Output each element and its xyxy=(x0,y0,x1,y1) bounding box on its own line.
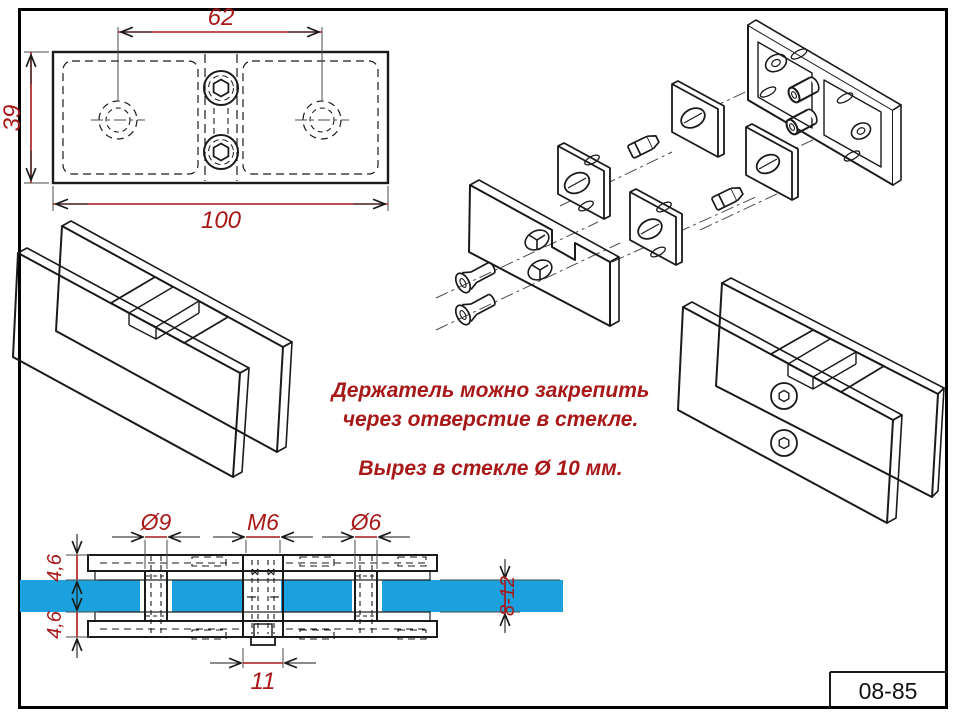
title-block: 08-85 xyxy=(830,672,947,708)
set-screw-2 xyxy=(711,185,744,211)
gasket-pad-left xyxy=(558,143,610,219)
dim-m6: M6 xyxy=(213,509,313,553)
dim-boss-width: 11 xyxy=(210,648,316,695)
dim-height: 39 xyxy=(0,52,49,183)
dim-o9: Ø9 xyxy=(112,509,200,569)
countersunk-screw-2 xyxy=(453,289,499,327)
dim-62-label: 62 xyxy=(208,4,235,31)
note-line-2: через отверстие в стекле. xyxy=(318,405,663,434)
dim-glass-label: 8-12 xyxy=(497,576,519,616)
dim-width: 100 xyxy=(53,186,388,234)
part-number: 08-85 xyxy=(859,678,918,704)
hidden-lines xyxy=(100,557,430,639)
exploded-view xyxy=(436,20,901,330)
top-view: 62 39 100 xyxy=(0,4,388,234)
technical-drawing-page: { "colors": { "dimension_red": "#A81818"… xyxy=(0,0,957,719)
dim-plate-bottom-label: 4,6 xyxy=(44,610,66,639)
dim-100-label: 100 xyxy=(201,207,242,234)
section-view: Ø9 M6 Ø6 4,6 xyxy=(20,509,563,695)
dim-m6-label: M6 xyxy=(247,509,279,535)
iso-view-right xyxy=(678,278,944,523)
gasket-pad-top xyxy=(672,81,724,157)
gasket-pad-right xyxy=(746,124,798,200)
note-line-1: Держатель можно закрепить xyxy=(318,376,663,405)
central-boss xyxy=(243,555,283,645)
countersunk-hole-2 xyxy=(525,256,556,284)
drawing-canvas: 62 39 100 xyxy=(0,0,957,719)
countersunk-hole-1 xyxy=(522,226,553,254)
front-plate-right-iso xyxy=(678,307,893,523)
note-block: Держатель можно закрепить через отверсти… xyxy=(318,376,663,483)
gasket-pad-bottom xyxy=(630,189,682,265)
set-screw-1 xyxy=(627,133,660,159)
glass-panel xyxy=(20,580,563,612)
dim-o9-label: Ø9 xyxy=(140,509,172,535)
note-line-3: Вырез в стекле Ø 10 мм. xyxy=(318,454,663,483)
dim-plate-top-label: 4,6 xyxy=(44,553,66,582)
front-plate-left-iso xyxy=(13,253,240,477)
dim-o6: Ø6 xyxy=(322,509,410,569)
iso-view-left xyxy=(13,221,292,477)
screw-head-1 xyxy=(771,383,797,409)
sleeve-o9 xyxy=(145,556,167,636)
dim-o6-label: Ø6 xyxy=(350,509,382,535)
dim-11-label: 11 xyxy=(251,668,276,695)
screw-head-2 xyxy=(771,430,797,456)
sleeve-o6 xyxy=(355,556,377,636)
dim-39-label: 39 xyxy=(0,105,26,132)
